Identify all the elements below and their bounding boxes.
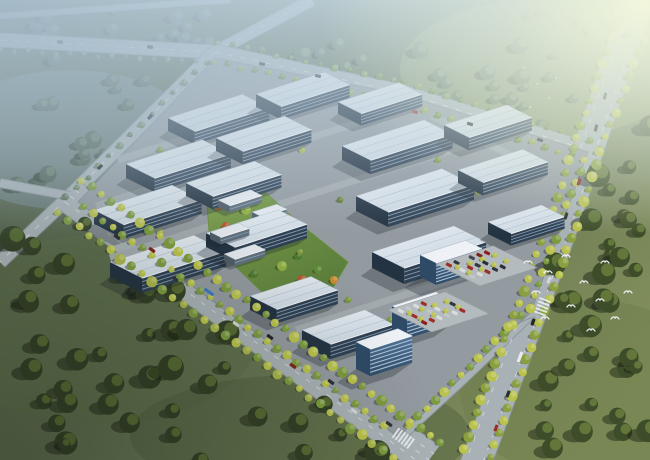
scene-svg: [0, 0, 650, 460]
haze-overlay: [0, 0, 650, 460]
aerial-industrial-park-rendering: [0, 0, 650, 460]
